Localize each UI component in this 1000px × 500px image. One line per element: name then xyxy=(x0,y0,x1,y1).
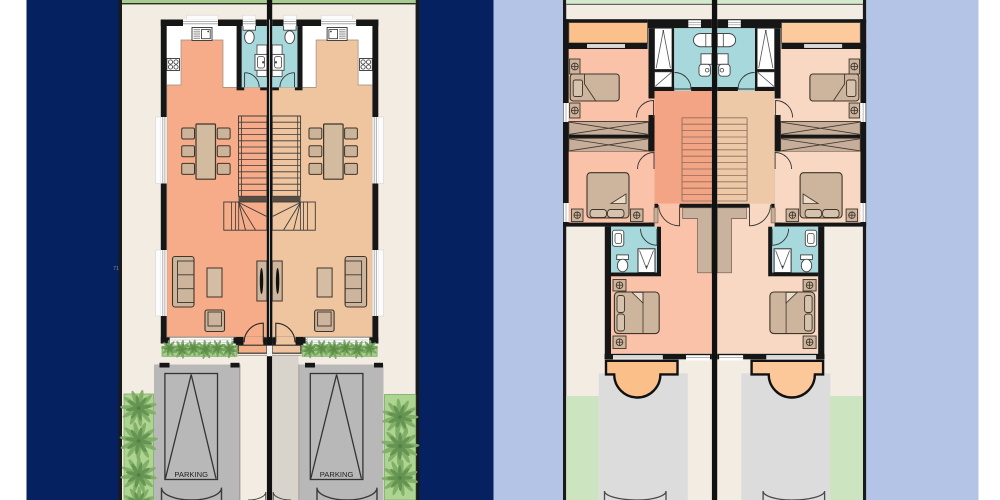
svg-text:71: 71 xyxy=(113,266,119,272)
svg-text:PARKING: PARKING xyxy=(174,470,208,479)
svg-text:PARKING: PARKING xyxy=(320,470,354,479)
